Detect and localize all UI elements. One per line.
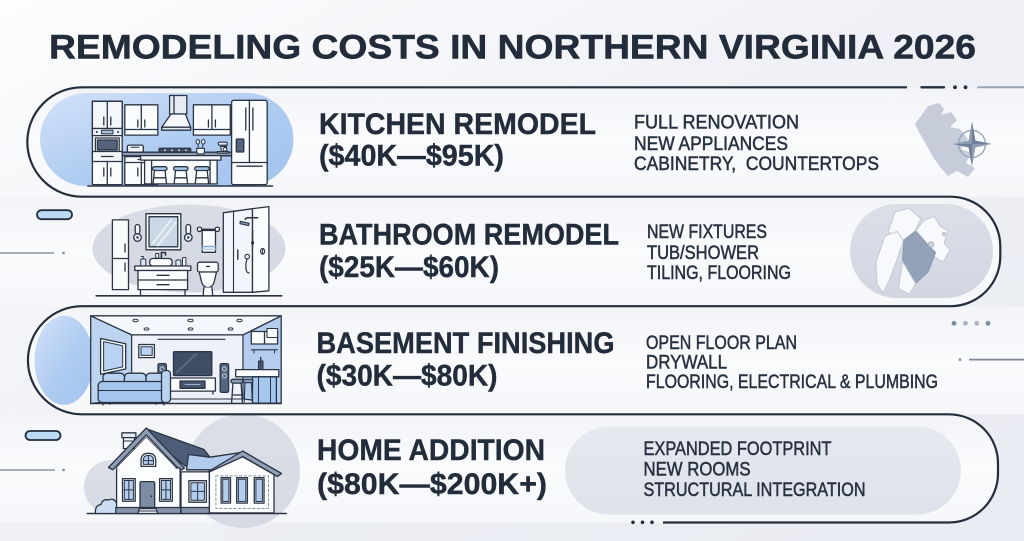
svg-text:NEW ROOMS: NEW ROOMS bbox=[644, 459, 751, 481]
svg-text:($30K—$80K): ($30K—$80K) bbox=[317, 360, 498, 393]
svg-text:BASEMENT FINISHING: BASEMENT FINISHING bbox=[317, 327, 615, 360]
svg-text:($25K—$60K): ($25K—$60K) bbox=[319, 251, 499, 284]
svg-text:TUB/SHOWER: TUB/SHOWER bbox=[647, 242, 759, 264]
svg-text:REMODELING COSTS IN NORTHERN V: REMODELING COSTS IN NORTHERN VIRGINIA 20… bbox=[49, 28, 976, 66]
svg-text:HOME ADDITION: HOME ADDITION bbox=[317, 434, 545, 467]
svg-text:FULL RENOVATION: FULL RENOVATION bbox=[634, 111, 799, 133]
svg-text:BATHROOM REMODEL: BATHROOM REMODEL bbox=[319, 219, 619, 252]
svg-text:($80K—$200K+): ($80K—$200K+) bbox=[317, 468, 547, 501]
svg-text:TILING, FLOORING: TILING, FLOORING bbox=[647, 262, 791, 284]
svg-text:KITCHEN REMODEL: KITCHEN REMODEL bbox=[319, 108, 596, 141]
svg-text:STRUCTURAL INTEGRATION: STRUCTURAL INTEGRATION bbox=[644, 479, 866, 501]
svg-text:NEW APPLIANCES: NEW APPLIANCES bbox=[634, 133, 788, 155]
svg-text:NEW FIXTURES: NEW FIXTURES bbox=[647, 221, 767, 243]
svg-text:($40K—$95K): ($40K—$95K) bbox=[319, 140, 504, 173]
svg-text:FLOORING, ELECTRICAL & PLUMBIN: FLOORING, ELECTRICAL & PLUMBING bbox=[646, 371, 938, 393]
svg-text:EXPANDED FOOTPRINT: EXPANDED FOOTPRINT bbox=[644, 438, 832, 460]
svg-text:CABINETRY, COUNTERTOPS: CABINETRY, COUNTERTOPS bbox=[634, 153, 879, 175]
